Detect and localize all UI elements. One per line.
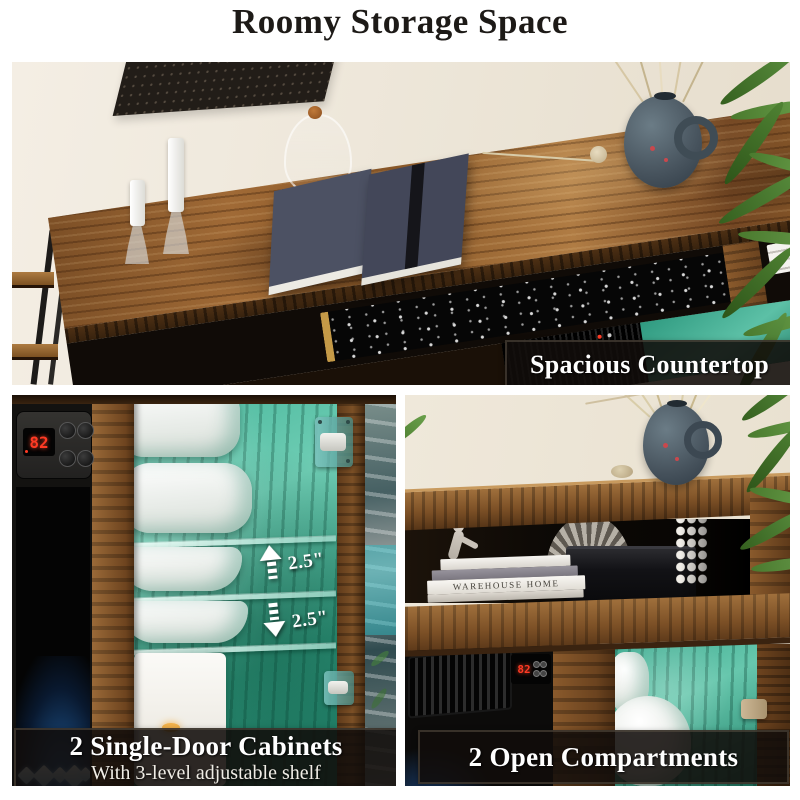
white-bowl [120,547,242,591]
hinge-screw [346,420,350,424]
countertop-caption: Spacious Countertop [530,350,769,379]
candle [130,180,145,226]
single-door-cabinet-panel: 2.5" 2.5" 82 [12,395,396,786]
hinge-screw [346,459,350,463]
open-compartments-panel: WAREHOUSE HOME 82 [405,395,790,786]
shelf-gap-label: 2.5" [287,549,326,576]
leaf-reflection [369,687,388,711]
control-button [59,450,76,467]
seashell [611,465,633,478]
control-button [59,422,76,439]
display-dot [25,450,28,453]
white-bowl [122,601,248,643]
vase-mouth [667,400,687,407]
dried-stem [606,62,643,103]
control-button [77,450,94,467]
cabinets-subcaption: With 3-level adjustable shelf [91,762,321,785]
door-hinge [741,699,767,719]
sculpture-body [447,529,465,561]
palm-leaf [405,412,429,447]
temperature-value: 82 [517,663,530,676]
compartments-caption: 2 Open Compartments [469,742,739,772]
cloche-knob [308,106,322,119]
palm-leaf [739,395,790,425]
book-stack: WAREHOUSE HOME [426,554,585,602]
fireplace-vents [408,647,512,718]
countertop-underside [12,395,396,404]
temperature-display: 82 [23,428,55,456]
door-hinge [315,417,353,467]
vase-dot [664,158,668,162]
compartment-shadow [680,519,750,603]
dried-stem [682,62,711,102]
flower-vase [643,403,709,485]
flower-vase [624,96,702,188]
vase-dot [675,457,679,461]
fireplace-control-panel: 82 [16,411,92,479]
side-shelf-board [12,344,58,360]
decor-book [361,153,469,285]
wood-side-panel [750,490,790,610]
cabinets-caption: 2 Single-Door Cabinets [69,731,342,761]
dried-stem [585,395,650,405]
down-arrow-icon [261,600,287,638]
door-hinge [324,671,354,705]
product-feature-image: Roomy Storage Space [0,0,800,800]
temperature-value: 82 [29,433,48,452]
up-arrow-icon [258,544,284,582]
dinnerware-stack [118,395,240,457]
shelf-gap-label: 2.5" [291,607,330,634]
control-button [77,422,94,439]
control-indicator-light [607,333,612,338]
vase-mouth [654,92,676,100]
temperature-indicator-light [597,334,602,339]
cabinets-caption-banner: 2 Single-Door Cabinets With 3-level adju… [14,728,396,786]
vase-handle [684,421,722,459]
seed-pod [590,146,607,163]
wall-picture-frame [113,62,340,116]
temperature-display: 82 [511,654,551,684]
hinge-barrel [328,681,348,694]
vase-handle [674,116,718,160]
dinnerware-stack [122,463,252,533]
book-strap [405,163,425,269]
leaf-reflection [369,649,390,669]
hinge-barrel [320,433,346,451]
vase-dot [663,443,668,448]
countertop-caption-banner: Spacious Countertop [505,340,790,385]
side-shelf-board [12,272,54,288]
compartments-caption-banner: 2 Open Compartments [418,730,789,784]
countertop-showcase-panel: Spacious Countertop [12,62,790,385]
door-reflection [365,545,396,635]
candle [168,138,184,212]
page-title: Roomy Storage Space [0,2,800,42]
open-compartment: WAREHOUSE HOME [405,519,750,603]
hinge-screw [318,420,322,424]
vase-dot [650,146,655,151]
control-buttons [533,661,545,677]
